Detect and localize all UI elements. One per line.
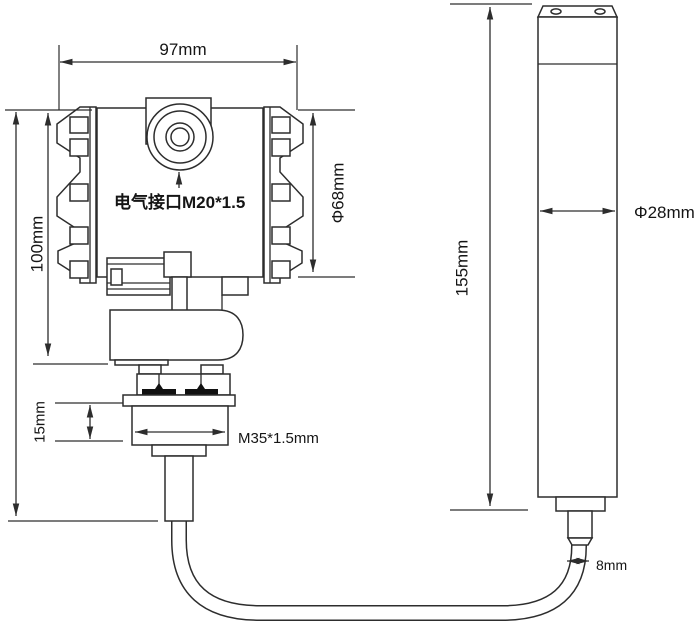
electrical-interface-label: 电气接口M20*1.5 [114, 192, 245, 212]
probe-diameter-label: Φ28mm [634, 203, 695, 222]
probe-cylinder [538, 17, 617, 497]
transmitter-dimension-drawing: 97mm 100mm Φ68mm 电气接口M20*1.5 15mm M35*1.… [0, 0, 700, 629]
left-fin [57, 107, 96, 283]
cable-gland-tube [165, 456, 193, 521]
transmitter-head [57, 98, 303, 521]
probe-length-label: 155mm [453, 240, 472, 297]
mounting-nut [132, 406, 228, 445]
transmitter-height-label: 100mm [28, 216, 47, 273]
dimension-155mm: 155mm [450, 4, 532, 510]
process-coupling [110, 310, 243, 365]
connection-cable [179, 519, 579, 613]
dimension-68mm: Φ68mm [298, 110, 355, 277]
dimension-15mm: 15mm [32, 401, 124, 443]
mounting-flange [123, 365, 235, 521]
probe-cap-hole [551, 9, 561, 14]
transmitter-width-label: 97mm [159, 40, 206, 59]
submersible-probe [538, 6, 617, 545]
transmitter-diameter-label: Φ68mm [329, 163, 348, 224]
electrical-port [146, 98, 213, 170]
mounting-thread-label: M35*1.5mm [238, 430, 319, 447]
gland-height-label: 15mm [32, 401, 49, 443]
cable-diameter-label: 8mm [596, 557, 627, 573]
probe-cap-hole [595, 9, 605, 14]
probe-cable-boot [568, 538, 592, 545]
dimension-drawing-page: 97mm 100mm Φ68mm 电气接口M20*1.5 15mm M35*1.… [0, 0, 700, 629]
right-fin [264, 107, 303, 283]
